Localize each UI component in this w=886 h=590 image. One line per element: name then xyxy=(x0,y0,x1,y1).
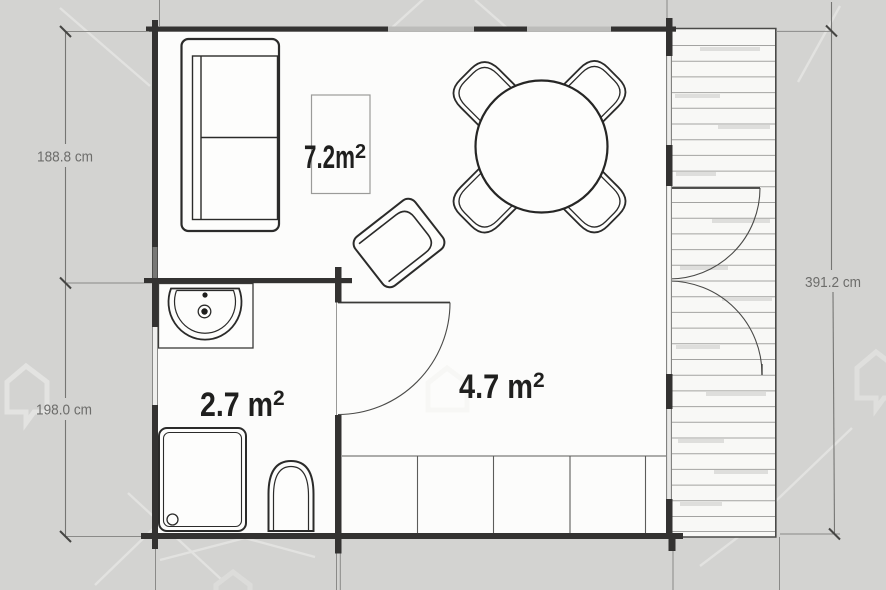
svg-text:188.8 cm: 188.8 cm xyxy=(37,149,93,166)
svg-text:2.7 m2: 2.7 m2 xyxy=(200,386,285,424)
svg-text:391.2 cm: 391.2 cm xyxy=(805,274,861,291)
svg-text:198.0 cm: 198.0 cm xyxy=(36,402,92,419)
svg-text:4.7 m2: 4.7 m2 xyxy=(459,368,545,406)
